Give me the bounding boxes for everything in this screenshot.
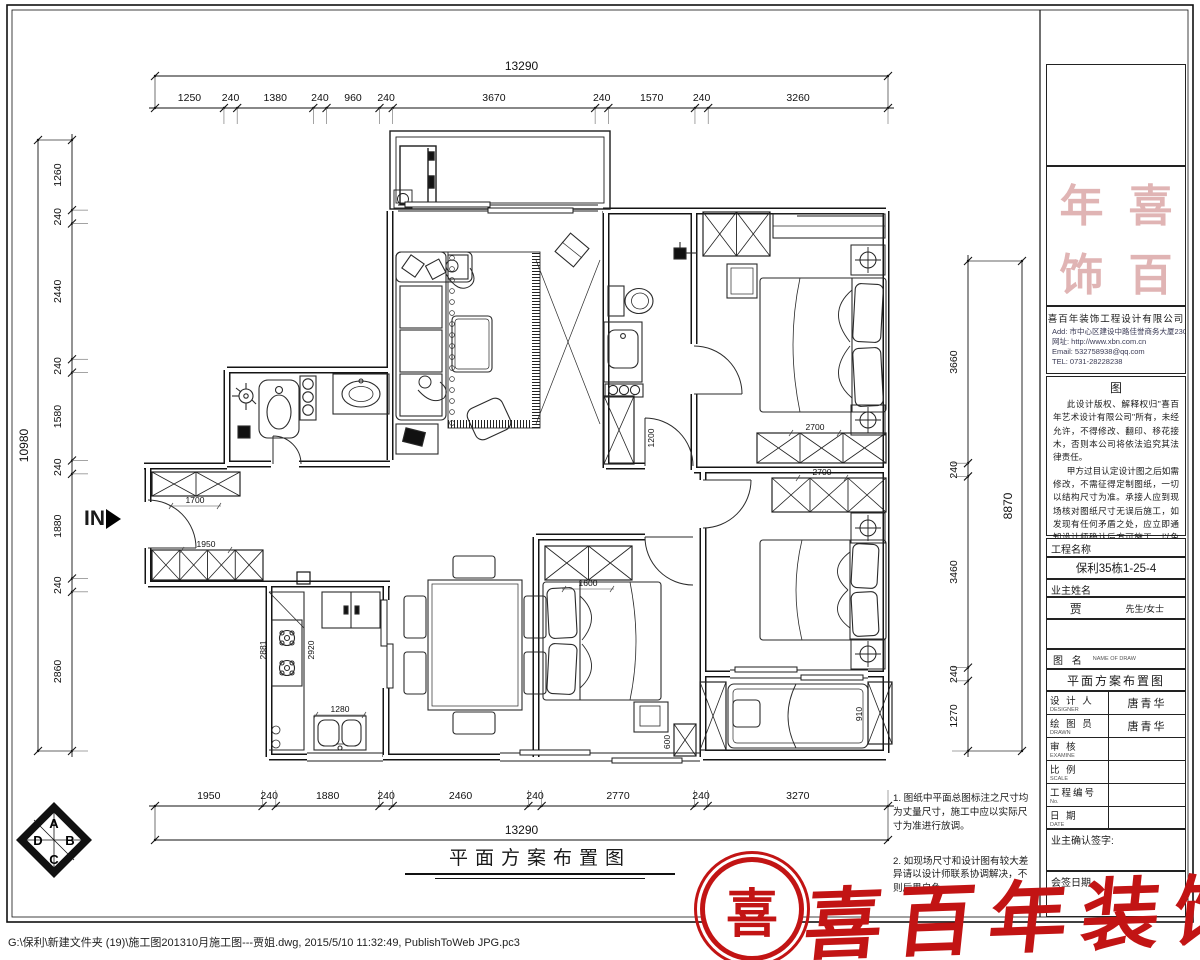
brand-emblem-icon: 喜: [700, 857, 804, 960]
bed-icon: [760, 278, 886, 412]
owner-name-label: 业主姓名: [1046, 579, 1186, 597]
dimension-label: 13290: [505, 59, 539, 73]
dining-table-icon: [428, 580, 522, 710]
dimension-label: 2860: [52, 660, 64, 684]
bed-icon: [760, 540, 886, 640]
entry-label: IN: [84, 507, 105, 531]
balcony-top: [390, 131, 610, 209]
dimension-label: 1570: [640, 92, 664, 104]
seal-char: 喜: [1116, 167, 1185, 236]
bathroom-1: [232, 374, 389, 438]
field-sublabel: No.: [1050, 799, 1105, 805]
copyright-notice-box: 图 此设计版权、解释权归"喜百年艺术设计有限公司"所有，未经允许，不得修改、翻印…: [1046, 376, 1186, 536]
company-tel: TEL: 0731-28228238: [1047, 357, 1185, 367]
field-label: 工程编号: [1050, 785, 1105, 799]
dimension-label: 240: [52, 208, 64, 226]
dimension-label: 1200: [646, 428, 656, 447]
sink-icon: [333, 374, 389, 414]
dimension-label: 3670: [482, 92, 506, 104]
notice-head: 图: [1047, 379, 1185, 396]
seal-char: 年: [1047, 167, 1116, 236]
armchair-icon: [465, 396, 514, 443]
field-sublabel: DRAWN: [1050, 730, 1105, 736]
bathroom-2: [604, 242, 697, 397]
dimension-label: 10980: [17, 428, 31, 462]
seal-char: 饰: [1047, 236, 1116, 305]
dimension-label: 910: [854, 707, 864, 721]
field-row-drawn: 绘 图 员DRAWN 唐青华: [1047, 715, 1185, 738]
company-address: Add: 市中心区建设中路佳誉商务大厦2308室: [1047, 327, 1185, 337]
title-underline: [405, 873, 675, 875]
field-label: 审 核: [1050, 739, 1105, 753]
daybed-icon: [728, 684, 868, 748]
dimension-label: 240: [377, 790, 395, 802]
field-value: [1109, 807, 1185, 829]
dimension-label: 1950: [197, 790, 221, 802]
diamond-letter-a: A: [49, 816, 59, 831]
dimension-label: 240: [692, 790, 710, 802]
field-sublabel: SCALE: [1050, 776, 1105, 782]
washing-machine-icon: [400, 146, 436, 204]
living-room: [396, 233, 600, 454]
kitchen-sink-icon: [314, 716, 366, 750]
field-value: [1109, 784, 1185, 806]
company-email: Email: 532758938@qq.com: [1047, 347, 1185, 357]
field-label: 设 计 人: [1050, 693, 1105, 707]
walls: [144, 211, 886, 757]
field-row-designer: 设 计 人DESIGNER 唐青华: [1047, 692, 1185, 715]
diamond-letter-d: D: [33, 833, 42, 848]
owner-name-row: 贾 先生/女士: [1046, 597, 1186, 619]
title-block-fields: 设 计 人DESIGNER 唐青华 绘 图 员DRAWN 唐青华 审 核EXAM…: [1046, 691, 1186, 829]
dimension-label: 3460: [948, 560, 960, 584]
stove-icon: [272, 620, 302, 686]
company-seal-logo: 年 喜 饰 百: [1046, 166, 1186, 306]
dimension-label: 240: [948, 665, 960, 683]
coffee-table-icon: [452, 316, 492, 372]
dimension-label: 1380: [264, 92, 288, 104]
dimension-label: 2700: [806, 422, 825, 432]
dimension-label: 1600: [579, 578, 598, 588]
bedroom-3: [543, 582, 668, 732]
shower-icon: [232, 383, 256, 410]
seal-char: 百: [1116, 236, 1185, 305]
dimension-label: 13290: [505, 823, 539, 837]
dimension-label: 2700: [813, 467, 832, 477]
dining-chair-icon: [404, 556, 546, 734]
lamp-symbols: [851, 245, 885, 669]
vanity-sink-icon: [604, 322, 642, 382]
dimension-chain-top: 1329012502401380240960240367024015702403…: [149, 59, 894, 124]
toilet-icon: [608, 286, 653, 316]
dimension-chain-right: 8870366024034602401270: [948, 255, 1026, 757]
shelf-icon: [300, 376, 316, 420]
dimension-label: 1580: [52, 405, 64, 429]
dimension-label: 1250: [178, 92, 202, 104]
bench-icon: [727, 264, 757, 298]
dimension-label: 1280: [331, 704, 350, 714]
kitchen: [269, 592, 380, 750]
field-row-project-no: 工程编号No.: [1047, 784, 1185, 807]
dimension-label: 240: [260, 790, 278, 802]
diamond-logo: A D B C: [16, 802, 92, 878]
dimension-label: 240: [311, 92, 329, 104]
master-bedroom: [727, 214, 886, 412]
rug-icon: [448, 252, 540, 428]
desk-icon: [634, 702, 668, 732]
drawing-name-value: 平面方案布置图: [1046, 669, 1186, 691]
dining-room: [404, 556, 546, 734]
dimension-label: 3260: [786, 92, 810, 104]
diamond-letter-b: B: [65, 833, 74, 848]
dimension-label: 240: [593, 92, 611, 104]
dimension-label: 240: [52, 576, 64, 594]
entry-marker: IN: [84, 507, 121, 531]
title-underline-2: [435, 878, 646, 879]
dimension-label: 960: [344, 92, 362, 104]
owner-name-value: 贾: [1047, 598, 1105, 618]
dimension-label: 2920: [306, 640, 316, 659]
field-sublabel: DESIGNER: [1050, 707, 1105, 713]
dimension-label: 1700: [186, 495, 205, 505]
title-block-spacer: [1046, 619, 1186, 649]
drawing-name-label: 图 名: [1047, 652, 1085, 667]
company-info-box: 喜百年装饰工程设计有限公司 Add: 市中心区建设中路佳誉商务大厦2308室 网…: [1046, 306, 1186, 374]
dimension-label: 1260: [52, 163, 64, 187]
squat-toilet-icon: [259, 380, 299, 438]
dimension-label: 600: [662, 735, 672, 749]
company-name: 喜百年装饰工程设计有限公司: [1047, 311, 1185, 325]
chair-icon: [640, 706, 660, 726]
field-value: [1109, 761, 1185, 783]
stool-icon: [238, 426, 250, 438]
dimension-label: 2460: [449, 790, 473, 802]
side-table-icon: [396, 424, 438, 454]
project-name-value: 保利35栋1-25-4: [1046, 557, 1186, 579]
dimension-label: 3270: [786, 790, 810, 802]
dimension-label: 2770: [606, 790, 630, 802]
emblem-character: 喜: [726, 872, 778, 947]
field-value: 唐青华: [1109, 692, 1185, 714]
field-sublabel: EXAMINE: [1050, 753, 1105, 759]
owner-suffix: 先生/女士: [1105, 598, 1186, 618]
dimension-label: 2440: [52, 280, 64, 304]
plan-title-text: 平面方案布置图: [405, 843, 675, 870]
kitchen-slider-panel: [381, 600, 387, 646]
notice-paragraph-1: 此设计版权、解释权归"喜百年艺术设计有限公司"所有，未经允许，不得修改、翻印、移…: [1047, 398, 1185, 465]
dimension-label: 1880: [316, 790, 340, 802]
field-row-examine: 审 核EXAMINE: [1047, 738, 1185, 761]
field-label: 绘 图 员: [1050, 716, 1105, 730]
dimension-chain-bottom: 1329019502401880240246024027702403270: [149, 790, 894, 844]
entry-arrow-icon: [106, 509, 121, 529]
field-row-date: 日 期DATE: [1047, 807, 1185, 830]
drawing-name-row: 图 名 NAME OF DRAW: [1046, 649, 1186, 669]
dimension-label: 2881: [258, 640, 268, 659]
company-website: 网址: http://www.xbn.com.cn: [1047, 337, 1185, 347]
wall-cabinet-icon: [322, 592, 380, 628]
dimension-label: 240: [526, 790, 544, 802]
title-block-blank-box: [1046, 64, 1186, 166]
note-1: 1. 图纸中平面总图标注之尺寸均 为丈量尺寸，施工中应以实际尺 寸为准进行放调。: [893, 792, 1041, 834]
dimension-chain-left: 1098012602402440240158024018802402860: [17, 134, 88, 757]
plan-title: 平面方案布置图: [405, 843, 675, 879]
project-name-label: 工程名称: [1046, 538, 1186, 557]
field-label: 日 期: [1050, 808, 1105, 822]
drawing-sheet: { "sheet": { "title": "平面方案布置图", "file_i…: [0, 0, 1200, 960]
bedroom-2: [760, 540, 886, 640]
diamond-letter-c: C: [49, 852, 59, 867]
dimension-label: 240: [222, 92, 240, 104]
windows: [307, 202, 884, 763]
field-value: 唐青华: [1109, 715, 1185, 737]
balcony-2: [728, 684, 868, 748]
file-path-text: G:\保利\新建文件夹 (19)\施工图201310月施工图---贾姐.dwg,…: [8, 934, 520, 950]
field-label: 比 例: [1050, 762, 1105, 776]
field-sublabel: DATE: [1050, 822, 1105, 828]
dimension-label: 240: [948, 461, 960, 479]
dimension-label: 8870: [1001, 492, 1015, 519]
field-value: [1109, 738, 1185, 760]
dimension-label: 3660: [948, 350, 960, 374]
dimension-label: 240: [377, 92, 395, 104]
person-icon: [446, 260, 474, 288]
drawing-name-sub: NAME OF DRAW: [1093, 656, 1136, 662]
dimension-label: 240: [52, 357, 64, 375]
stool-icon: [733, 700, 760, 727]
sofa-icon: [396, 252, 472, 420]
dimension-label: 1270: [948, 704, 960, 728]
dimension-label: 240: [52, 458, 64, 476]
dimension-label: 1950: [197, 539, 216, 549]
dimension-label: 240: [693, 92, 711, 104]
brand-calligraphy-text: 喜百年装饰: [799, 848, 1200, 960]
bed-icon: [543, 582, 661, 700]
shelf-icon: [605, 384, 643, 397]
dimension-label: 1880: [52, 514, 64, 538]
field-row-scale: 比 例SCALE: [1047, 761, 1185, 784]
